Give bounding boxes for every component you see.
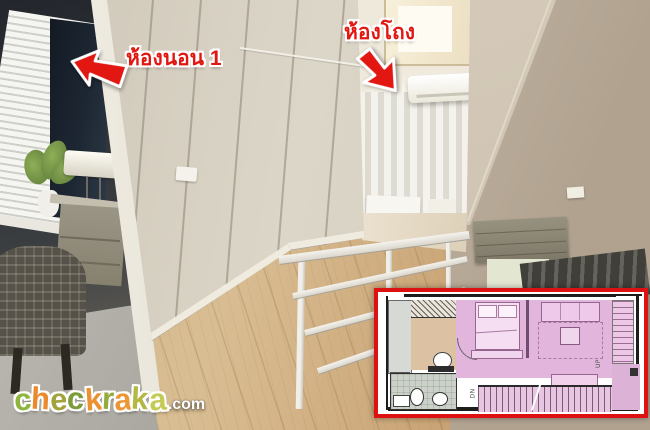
checkraka-watermark: checkraka.com [14,383,205,414]
watermark-letter: h [30,383,51,415]
plan-sofa-cushion [560,303,561,320]
watermark-wordmark: checkraka [14,396,166,413]
plan-pillow [498,305,517,318]
plan-stairs-up [612,300,634,364]
plan-pillow [478,305,497,318]
plan-toilet [410,388,424,406]
plan-wardrobe [411,300,456,318]
plan-wall-end [630,368,638,376]
plan-bed-bench [471,350,523,359]
floorplan: DN UP [380,294,642,412]
plan-wall [636,296,639,364]
plan-dn-label: DN [470,388,477,398]
watermark-suffix: .com [168,396,205,414]
arrow-left-icon [63,41,132,98]
plan-bed-fold [476,330,517,339]
floorplan-inset: DN UP [374,288,648,418]
plan-balcony [388,300,412,374]
plan-up-label: UP [595,359,602,368]
plan-sofa-cushion [579,303,580,320]
plan-sofa [541,302,600,322]
plan-partition-wall [526,300,529,358]
watermark-letter: c [67,383,86,415]
watermark-letter: k [130,383,149,415]
plan-bed [475,302,520,350]
watermark-letter: k [84,383,103,415]
plan-shower-box [393,395,410,407]
plan-sink [432,392,448,406]
plan-coffee-table [560,327,580,345]
plan-stairs-down [478,385,612,412]
watermark-letter: a [148,383,167,415]
plan-vanity-counter [428,366,454,372]
interior-photo: ห้องนอน 1 ห้องโถง [0,0,650,430]
bedroom-label: ห้องนอน 1 [126,42,222,75]
plan-wall [404,294,616,297]
